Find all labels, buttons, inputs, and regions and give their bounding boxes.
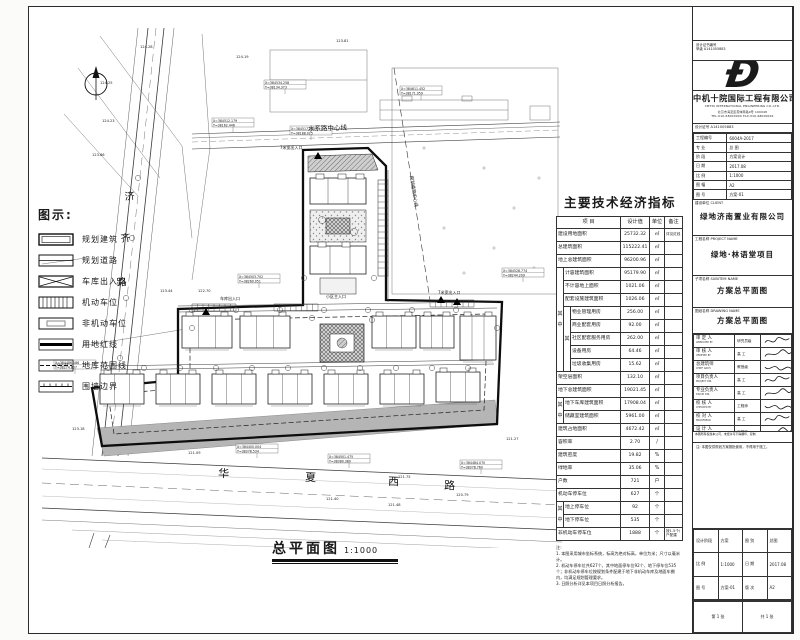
mini-label: 比 例 — [694, 553, 719, 576]
sign-rank: 高 工 — [735, 374, 760, 387]
legend-item-label: 机动车位 — [82, 297, 118, 308]
svg-text:121.09: 121.09 — [188, 451, 201, 455]
building — [380, 374, 424, 404]
plan-scale: 1:1000 — [344, 546, 378, 555]
table-row: 商业配套用房92.00㎡ — [557, 320, 683, 333]
row-note — [665, 346, 683, 359]
row-note: 按1.5个/户配建 — [665, 528, 683, 541]
row-num: 256.00 — [621, 307, 650, 320]
row-num: 132.10 — [621, 372, 650, 385]
svg-text:123.86: 123.86 — [92, 153, 105, 157]
mini-label: 图 号 — [694, 576, 719, 599]
row-label: 地上停车位 — [564, 502, 621, 515]
row-label: 非机动车停车位 — [557, 528, 621, 541]
row-note — [665, 489, 683, 502]
mini-value: 方案 — [718, 530, 743, 553]
sign-rank: 高 工 — [735, 413, 760, 426]
row-label: 商业配套用房 — [571, 320, 621, 333]
survey-marks — [422, 146, 541, 275]
sign-rank: 工程师 — [735, 400, 760, 413]
row-unit: 个 — [650, 502, 665, 515]
plan-label: 小区主入口 — [326, 293, 346, 299]
plan-label: 西 — [388, 475, 399, 488]
table-row: 其 中地上停车位92个 — [557, 502, 683, 515]
mini-value: 总图 — [767, 530, 792, 553]
company-address2: TEL:010-68000000 FAX:010-68000001 — [693, 114, 792, 118]
row-unit: ㎡ — [650, 411, 665, 424]
row-unit: 个 — [650, 489, 665, 502]
row-note — [665, 242, 683, 255]
row-note — [665, 372, 683, 385]
drawing-name: 方案总平面图 — [693, 315, 792, 326]
svg-text:124.25: 124.25 — [100, 81, 113, 85]
row-num: 721 — [621, 476, 650, 489]
table-row: 建筑密度19.82% — [557, 450, 683, 463]
north-cluster — [308, 154, 388, 294]
row-label: 机动车停车位 — [557, 489, 621, 502]
mini-value: 2017.08 — [767, 553, 792, 576]
row-unit: ㎡ — [650, 255, 665, 268]
col-item: 项 目 — [557, 217, 621, 229]
row-label: 建设用地面积 — [557, 229, 621, 242]
tree — [429, 365, 434, 370]
sign-role-en: DISCIP. DIR. — [696, 394, 732, 396]
svg-text:121.40: 121.40 — [326, 497, 339, 501]
sign-role-en: PROOFREAD — [696, 420, 732, 422]
svg-text:121.27: 121.27 — [506, 437, 519, 441]
table-row: 非机动车停车位1888个按1.5个/户配建 — [557, 528, 683, 541]
row-note — [665, 398, 683, 411]
company-logo-icon: Ð — [693, 61, 792, 88]
table-row: 地下总建筑面积19021.45㎡ — [557, 385, 683, 398]
row-unit: ㎡ — [650, 307, 665, 320]
row-unit: 户 — [650, 476, 665, 489]
copyright-note: 本图所有权属本公司，未经许可不得翻印、复制 — [693, 432, 792, 438]
svg-text:124.23: 124.23 — [102, 119, 115, 123]
tb-info: 设计证号 A141005883 工程编号6004A-2017专 业总 图阶 段方… — [693, 124, 792, 200]
legend-item-car-parking: 机动车位 — [38, 292, 150, 313]
row-label: 储藏室建筑面积 — [564, 411, 621, 424]
econ-notes: 注: 1. 本图采用城市坐标系统，标高为绝对标高，单位为米；尺寸以毫米计。2. … — [556, 545, 682, 586]
project-label: 工程名称 PROJECT NAME — [693, 236, 792, 243]
signature-row: 校 对 人PROOFREAD高 工 — [694, 413, 792, 426]
table-row: 户数721户 — [557, 476, 683, 489]
row-note — [665, 268, 683, 281]
row-label: 地下停车位 — [564, 515, 621, 528]
row-unit: ㎡ — [650, 320, 665, 333]
plan-label: 7米宽出入口 — [438, 289, 461, 295]
row-note — [665, 424, 683, 437]
planned-building-swatch-icon — [38, 233, 74, 246]
garage-entrance-swatch-icon — [38, 275, 74, 288]
row-num: 1026.06 — [621, 294, 650, 307]
client-name: 绿地济南置业有限公司 — [693, 211, 792, 222]
row-num: 95179.90 — [621, 268, 650, 281]
svg-text:X=384484.070: X=384484.070 — [461, 461, 485, 465]
signature-table: 审 定 人APPROVED BY研究员级审 核 人VERIFIED BY高 工总… — [693, 334, 792, 432]
svg-text:123.18: 123.18 — [72, 427, 85, 431]
table-row: 建筑占地面积4672.42㎡ — [557, 424, 683, 437]
tree — [371, 275, 376, 280]
company-name: 中机十院国际工程有限公司 — [693, 92, 792, 104]
row-label: 建筑占地面积 — [557, 424, 621, 437]
signature — [760, 348, 791, 361]
cert-line2: 甲级 A141005883 — [696, 47, 789, 51]
tb-drawing: 图纸名称 DRAWING NAME 方案总平面图 — [693, 308, 792, 334]
signature-icon — [763, 387, 792, 398]
row-note — [665, 502, 683, 515]
plan-label: 水系路中心线 — [308, 123, 348, 133]
info-value: 1:1000 — [727, 171, 792, 180]
svg-text:Y=38378.534: Y=38378.534 — [237, 449, 259, 453]
table-row: 配套设施建筑面积1026.06㎡ — [557, 294, 683, 307]
row-num: 19.82 — [621, 450, 650, 463]
info-label: 图 号 — [694, 190, 727, 199]
sign-rank: 高 工 — [735, 348, 760, 361]
group-label: 其 中 — [557, 268, 564, 372]
note-line: 2. 机动车停车位共627个，其中地面停车位92个、地下停车位535个；非机动车… — [556, 563, 682, 581]
row-label: 建筑密度 — [557, 450, 621, 463]
building — [324, 374, 368, 404]
col-note: 备注 — [665, 217, 683, 229]
svg-text:Y=38380.380: Y=38380.380 — [329, 459, 351, 463]
group-label: 其 中 — [557, 398, 564, 424]
signature-row: 总建筑师CHIEF ARCH.教授级 — [694, 361, 792, 374]
row-label: 总建筑面积 — [557, 242, 621, 255]
row-note — [665, 320, 683, 333]
remark-note: 注: 本图仅供规划方案报批使用，不得用于施工。 — [693, 443, 792, 451]
row-unit: ㎡ — [650, 333, 665, 346]
mini-label: 日 期 — [743, 553, 768, 576]
col-unit: 单位 — [650, 217, 665, 229]
row-label: 物业管理用房 — [571, 307, 621, 320]
table-row: 其物业管理用房256.00㎡ — [557, 307, 683, 320]
mini-table: 设计阶段方案图 别总图比 例1:1000日 期2017.08图 号方案-01版 … — [693, 529, 792, 600]
signature-row: 校 核 人CHECKED BY工程师 — [694, 400, 792, 413]
row-label: 配套设施建筑面积 — [564, 294, 621, 307]
row-unit: ㎡ — [650, 268, 665, 281]
south-road — [42, 458, 562, 548]
signature-row: 项目负责人PROJECT DIR.高 工 — [694, 374, 792, 387]
row-num: 17908.04 — [621, 398, 650, 411]
row-num: 2.70 — [621, 437, 650, 450]
tb-last-row: 第 1 张共 1 张 — [693, 601, 792, 633]
planned-road-swatch-icon — [38, 254, 74, 267]
legend-title: 图示: — [38, 206, 150, 223]
legend-item-label: 用地红线 — [82, 339, 118, 350]
row-note — [665, 450, 683, 463]
plan-label: 车库出入口 — [220, 295, 240, 301]
bike-parking-swatch-icon — [38, 317, 74, 330]
tb-project: 工程名称 PROJECT NAME 绿地·林语堂项目 — [693, 236, 792, 276]
plan-title: 总平面图1:1000 — [272, 538, 412, 564]
svg-text:122.70: 122.70 — [198, 289, 211, 293]
signature-icon — [763, 374, 792, 385]
tb-logo: Ð — [693, 61, 792, 91]
table-row: 地下停车位535个 — [557, 515, 683, 528]
svg-text:121.48: 121.48 — [388, 503, 401, 507]
legend-item-label: 车库出入口 — [82, 276, 127, 287]
title-underline-2 — [272, 563, 398, 564]
row-num: 262.00 — [621, 333, 650, 346]
table-row: 地上总建筑面积96200.96㎡ — [557, 255, 683, 268]
legend-item-label: 地库范围线 — [82, 360, 127, 371]
row-unit: 个 — [650, 515, 665, 528]
row-num: 19021.45 — [621, 385, 650, 398]
row-label: 架空层面积 — [557, 372, 621, 385]
project-name: 绿地·林语堂项目 — [693, 249, 792, 260]
row-note — [665, 255, 683, 268]
plan-label: 7米宽出入口 — [280, 144, 303, 150]
row-num: 25732.32 — [621, 229, 650, 242]
row-note — [665, 307, 683, 320]
signature-icon — [763, 400, 792, 411]
building — [182, 316, 232, 348]
legend-item-label: 规划道路 — [82, 255, 118, 266]
row-num: 92 — [621, 502, 650, 515]
tb-client: 建设单位 CLIENT 绿地济南置业有限公司 — [693, 200, 792, 236]
mini-label: 版 次 — [743, 576, 768, 599]
legend-item-planned-road: 规划道路 — [38, 250, 150, 271]
row-unit: ㎡ — [650, 372, 665, 385]
building — [212, 374, 256, 404]
central-plaza — [320, 324, 364, 362]
subitem-name: 方案总平面图 — [693, 285, 792, 296]
sign-role-en: APPROVED BY — [696, 342, 732, 344]
signature-icon — [763, 348, 792, 359]
row-num: 535 — [621, 515, 650, 528]
tb-subitem: 子项名称 SUBITEM NAME 方案总平面图 — [693, 276, 792, 308]
plan-label: 路 — [444, 479, 455, 492]
signature — [760, 335, 791, 348]
row-unit: ㎡ — [650, 229, 665, 242]
sign-role-en: CHECKED BY — [696, 407, 732, 409]
tb-cert: 设计证书编号 甲级 A141005883 — [693, 41, 792, 61]
building — [156, 374, 200, 404]
land-red-line-swatch-icon — [38, 338, 74, 351]
building — [240, 316, 290, 348]
signature-icon — [763, 413, 792, 424]
table-row: 其 中计容建筑面积95179.90㎡ — [557, 268, 683, 281]
sign-role-en: PROJECT DIR. — [696, 381, 732, 383]
row-label: 户数 — [557, 476, 621, 489]
legend-item-garage-entrance: 车库出入口 — [38, 271, 150, 292]
signature — [760, 361, 791, 374]
svg-text:123.44: 123.44 — [160, 289, 173, 293]
tree — [393, 365, 398, 370]
row-note — [665, 281, 683, 294]
tb-copyright: 本图所有权属本公司，未经许可不得翻印、复制 — [693, 432, 792, 443]
info-value: 方案设计 — [727, 152, 792, 161]
svg-text:Y=38260.051: Y=38260.051 — [239, 279, 261, 283]
info-value: 总 图 — [727, 143, 792, 152]
sign-rank: 教授级 — [735, 361, 760, 374]
row-num: 115222.41 — [621, 242, 650, 255]
row-num: 627 — [621, 489, 650, 502]
row-unit: ㎡ — [650, 242, 665, 255]
tb-mini-table: 设计阶段方案图 别总图比 例1:1000日 期2017.08图 号方案-01版 … — [693, 529, 792, 601]
note-line: 3. 日照分析详见本项目日照分析报告。 — [556, 581, 682, 587]
tree — [453, 307, 458, 312]
subgroup-label: 其 — [564, 307, 571, 372]
mini-label: 设计阶段 — [694, 530, 719, 553]
svg-text:X=384534.258: X=384534.258 — [265, 81, 289, 85]
sign-role-en: CHIEF ARCH. — [696, 368, 732, 370]
title-block: 设计证书编号 甲级 A141005883 Ð 中机十院国际工程有限公司 CMTD… — [692, 6, 793, 634]
plan-label: 夏 — [305, 471, 316, 484]
sign-rank: 研究员级 — [735, 335, 760, 348]
row-note — [665, 463, 683, 476]
svg-text:Y=38134.373: Y=38134.373 — [265, 85, 287, 89]
info-label: 日 期 — [694, 162, 727, 171]
info-label: 工程编号 — [694, 134, 727, 143]
info-label: 比 例 — [694, 171, 727, 180]
drawing-label: 图纸名称 DRAWING NAME — [693, 308, 792, 315]
signature-row: 审 定 人APPROVED BY研究员级 — [694, 335, 792, 348]
tb-remark: 注: 本图仅供规划方案报批使用，不得用于施工。 — [693, 443, 792, 529]
row-label: 计容建筑面积 — [564, 268, 621, 281]
sheet-count: 第 1 张 — [694, 602, 743, 633]
legend-item-basement-line: 地库范围线 — [38, 355, 150, 376]
svg-text:X=384528.774: X=384528.774 — [503, 269, 527, 273]
signature-icon — [763, 361, 792, 372]
table-row: 总建筑面积115222.41㎡ — [557, 242, 683, 255]
row-label: 不计容地上面积 — [564, 281, 621, 294]
signature — [760, 387, 791, 400]
info-value: 方案-01 — [727, 190, 792, 199]
building — [460, 316, 496, 360]
legend-item-bike-parking: 非机动车位 — [38, 313, 150, 334]
table-row: 设备用房64.46㎡ — [557, 346, 683, 359]
svg-text:X=384400.004: X=384400.004 — [237, 445, 261, 449]
row-label: 容积率 — [557, 437, 621, 450]
row-note — [665, 411, 683, 424]
row-note — [665, 476, 683, 489]
row-note — [665, 385, 683, 398]
row-unit: 个 — [650, 528, 665, 541]
row-num: 5961.00 — [621, 411, 650, 424]
tb-empty-top — [693, 7, 792, 41]
row-note — [665, 515, 683, 528]
svg-text:124.19: 124.19 — [236, 55, 249, 59]
signature — [760, 400, 791, 413]
table-row: 其 中地下车库建筑面积17908.04㎡ — [557, 398, 683, 411]
sheet-count-row: 第 1 张共 1 张 — [693, 601, 792, 633]
row-unit: ㎡ — [650, 424, 665, 437]
row-num: 1021.06 — [621, 281, 650, 294]
svg-text:Y=38378.760: Y=38378.760 — [461, 465, 483, 469]
client-label: 建设单位 CLIENT — [693, 200, 792, 207]
row-unit: ㎡ — [650, 281, 665, 294]
row-note — [665, 437, 683, 450]
econ-table: 项 目设计值单位备注建设用地面积25732.32㎡详见红线总建筑面积115222… — [556, 216, 683, 541]
row-label: 地上总建筑面积 — [557, 255, 621, 268]
info-value: 2017.08 — [727, 162, 792, 171]
svg-text:X=384501.475: X=384501.475 — [329, 455, 353, 459]
signature-row: 审 核 人VERIFIED BY高 工 — [694, 348, 792, 361]
legend-item-planned-building: 规划建筑 — [38, 229, 150, 250]
row-unit: ㎡ — [650, 359, 665, 372]
row-num: 15.62 — [621, 359, 650, 372]
row-unit: % — [650, 450, 665, 463]
sign-role-en: VERIFIED BY — [696, 355, 732, 357]
svg-text:121.75: 121.75 — [398, 475, 411, 479]
tb-company: 中机十院国际工程有限公司 CMTDI INTERNATIONAL ENGINEE… — [693, 91, 792, 124]
row-label: 社区配套服务用房 — [571, 333, 621, 346]
svg-text:X=384503.702: X=384503.702 — [239, 275, 263, 279]
note-line: 1. 本图采用城市坐标系统，标高为绝对标高，单位为米；尺寸以毫米计。 — [556, 551, 682, 563]
table-row: 架空层面积132.10㎡ — [557, 372, 683, 385]
svg-text:123.81: 123.81 — [336, 39, 349, 43]
economic-indicators: 主要技术经济指标 项 目设计值单位备注建设用地面积25732.32㎡详见红线总建… — [556, 192, 684, 586]
group-label: 其 中 — [557, 502, 564, 528]
table-row: 不计容地上面积1021.06㎡ — [557, 281, 683, 294]
signature-row: 专业负责人DISCIP. DIR.高 工 — [694, 387, 792, 400]
building — [372, 316, 416, 348]
tree — [365, 307, 370, 312]
info-table: 工程编号6004A-2017专 业总 图阶 段方案设计日 期2017.08比 例… — [693, 133, 792, 200]
building — [420, 316, 454, 348]
info-label: 图 幅 — [694, 180, 727, 189]
info-label: 阶 段 — [694, 152, 727, 161]
table-row: 容积率2.70/ — [557, 437, 683, 450]
mini-value: A2 — [767, 576, 792, 599]
info-header: 设计证号 A141005883 — [693, 124, 792, 133]
mini-label: 图 别 — [743, 530, 768, 553]
row-label: 设备用房 — [571, 346, 621, 359]
tree — [321, 365, 326, 370]
residential-buildings — [100, 312, 496, 406]
row-unit: ㎡ — [650, 398, 665, 411]
row-note: 详见红线 — [665, 229, 683, 242]
col-value: 设计值 — [621, 217, 650, 229]
svg-text:120.79: 120.79 — [456, 493, 469, 497]
legend-item-label: 规划建筑 — [82, 234, 118, 245]
plan-title-text: 总平面图 — [272, 538, 340, 558]
plan-label: 华 — [218, 466, 229, 480]
info-value: A2 — [727, 180, 792, 189]
row-num: 4672.42 — [621, 424, 650, 437]
row-unit: % — [650, 463, 665, 476]
legend-item-label: 围墙边界 — [82, 381, 118, 392]
econ-table-title: 主要技术经济指标 — [556, 192, 684, 211]
subitem-label: 子项名称 SUBITEM NAME — [693, 276, 792, 283]
row-unit: ㎡ — [650, 385, 665, 398]
row-num: 1888 — [621, 528, 650, 541]
car-parking-swatch-icon — [38, 296, 74, 309]
info-value: 6004A-2017 — [727, 134, 792, 143]
row-unit: ㎡ — [650, 294, 665, 307]
mini-value: 1:1000 — [718, 553, 743, 576]
legend-item-land-red-line: 用地红线 — [38, 334, 150, 355]
signature — [760, 374, 791, 387]
legend-item-wall-boundary: 围墙边界 — [38, 376, 150, 397]
row-num: 96200.96 — [621, 255, 650, 268]
row-num: 35.06 — [621, 463, 650, 476]
row-unit: ㎡ — [650, 346, 665, 359]
row-note — [665, 359, 683, 372]
signature-icon — [763, 335, 792, 346]
row-num: 64.46 — [621, 346, 650, 359]
row-note — [665, 294, 683, 307]
wall-boundary-swatch-icon — [38, 380, 74, 393]
row-label: 绿地率 — [557, 463, 621, 476]
row-label: 地下车库建筑面积 — [564, 398, 621, 411]
signature — [760, 413, 791, 426]
tree — [309, 315, 314, 320]
basement-line-swatch-icon — [38, 359, 74, 372]
sign-rank: 高 工 — [735, 387, 760, 400]
